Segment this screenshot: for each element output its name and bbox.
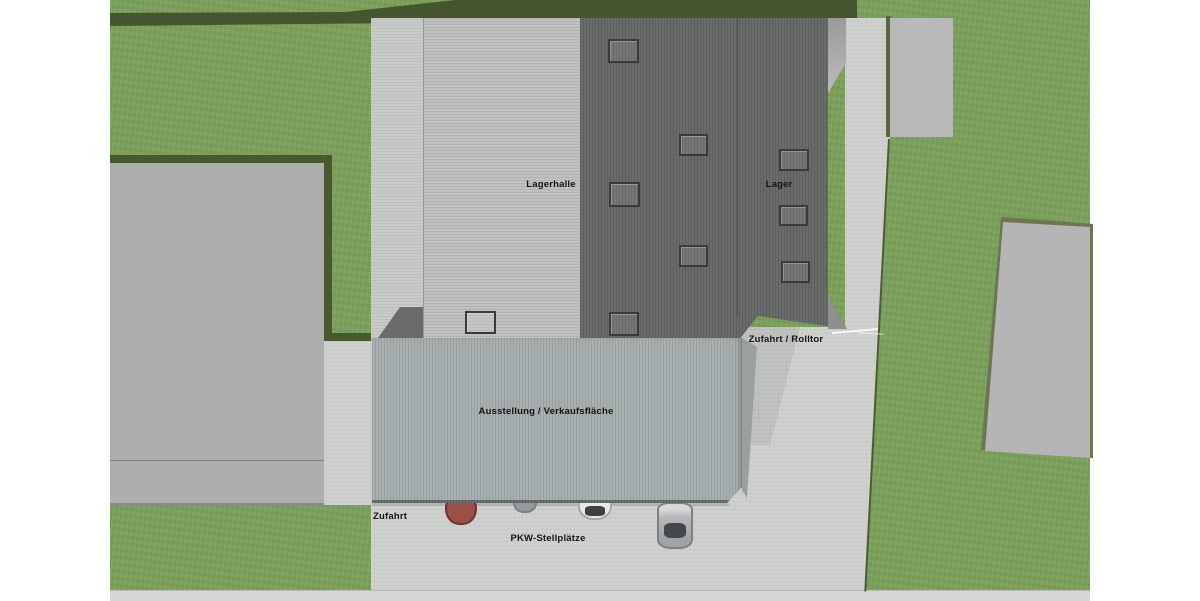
roof-skylight [609, 312, 639, 336]
label-pkw-stellplaetze: PKW-Stellplätze [510, 533, 585, 544]
parked-car-silver [657, 502, 693, 549]
roof-skylight [781, 261, 810, 283]
roof-section-divider [737, 18, 738, 316]
paved-strip-west [371, 18, 424, 341]
car-windshield [664, 523, 686, 538]
label-lager: Lager [766, 179, 793, 190]
hedge-row [324, 163, 332, 337]
ausstellung-roof [372, 338, 742, 503]
lager-roof [580, 18, 848, 341]
roof-skylight [608, 39, 639, 63]
label-ausstellung-verkaufsflaeche: Ausstellung / Verkaufsfläche [479, 406, 614, 417]
neighbor-building-west [110, 163, 324, 506]
roof-skylight [465, 311, 496, 334]
site-plan-page: { "plan": { "areas": { "lagerhalle": {"l… [0, 0, 1200, 600]
hedge-row [110, 155, 332, 163]
label-zufahrt: Zufahrt [373, 511, 407, 522]
roof-skylight [779, 205, 808, 226]
hedge-row [324, 333, 372, 341]
paved-strip-south [110, 590, 1090, 601]
lager-east-wall [828, 18, 846, 93]
site-plan: Lagerhalle Lager Zufahrt / Rolltor Ausst… [110, 0, 1090, 600]
roof-skylight [679, 245, 708, 267]
roof-skylight [779, 149, 809, 171]
label-zufahrt-rolltor: Zufahrt / Rolltor [749, 334, 824, 345]
label-lagerhalle: Lagerhalle [526, 179, 576, 190]
roof-seam [110, 460, 324, 461]
lager-southeast-corner [828, 296, 847, 329]
neighbor-building-northeast [890, 18, 953, 137]
neighbor-building-southeast [985, 222, 1090, 458]
car-windshield [585, 506, 605, 516]
roof-skylight [679, 134, 708, 156]
roof-skylight [609, 182, 640, 207]
